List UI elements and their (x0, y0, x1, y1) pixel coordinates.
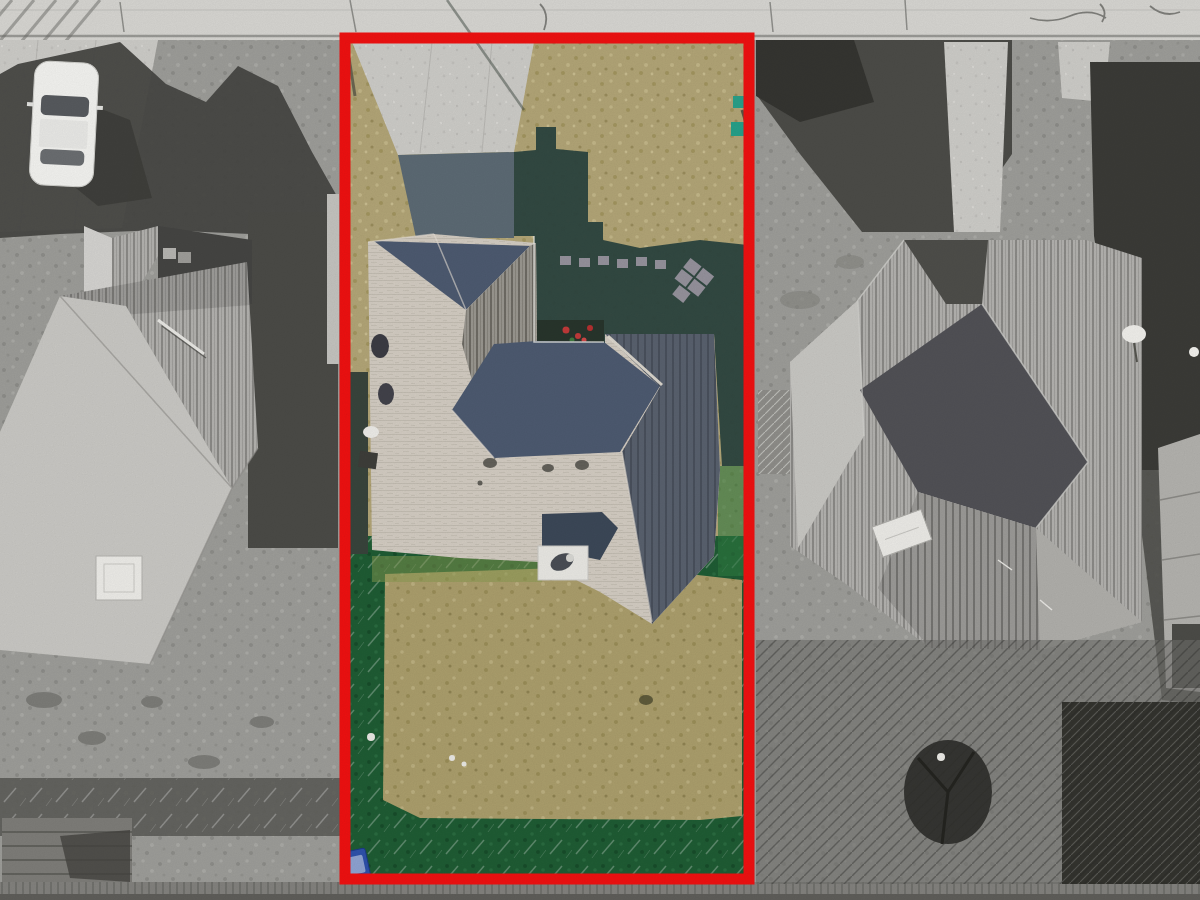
aerial-photo (0, 0, 1200, 900)
photo-grain-overlay (0, 0, 1200, 900)
aerial-photo-stage (0, 0, 1200, 900)
